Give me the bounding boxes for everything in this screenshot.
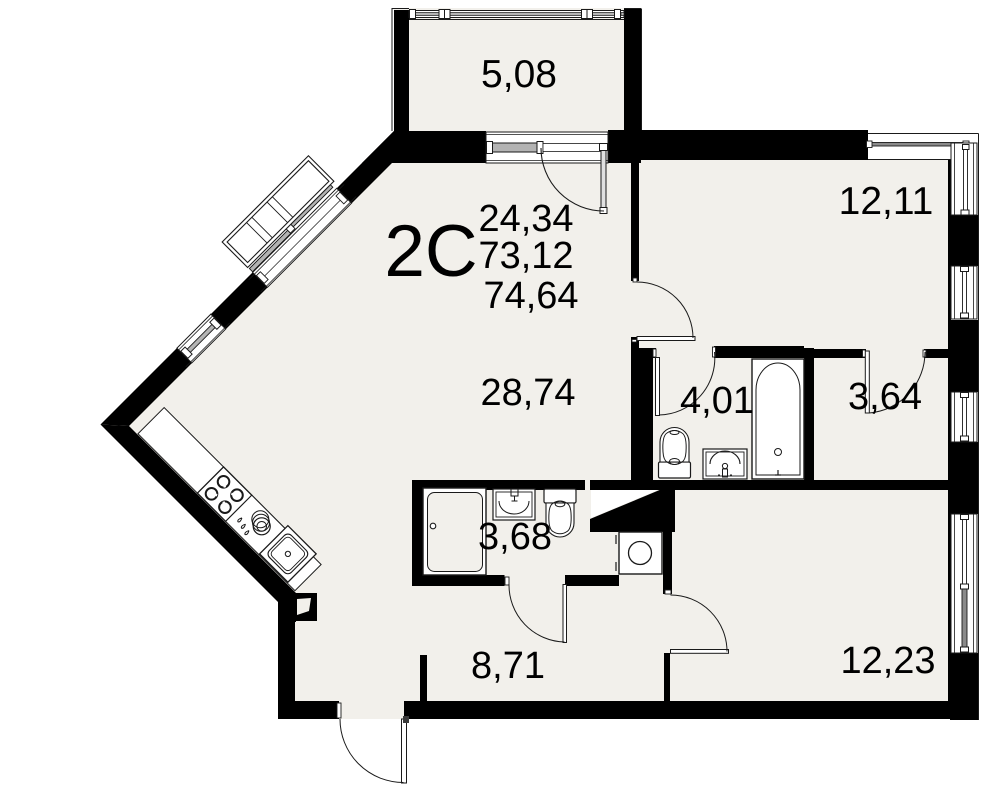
svg-text:3,64: 3,64 — [848, 376, 922, 418]
svg-text:4,01: 4,01 — [680, 380, 754, 422]
svg-text:2C: 2C — [384, 211, 477, 292]
svg-text:28,74: 28,74 — [480, 372, 575, 414]
svg-text:5,08: 5,08 — [481, 53, 557, 96]
svg-text:12,11: 12,11 — [839, 180, 934, 223]
svg-text:73,12: 73,12 — [478, 235, 573, 277]
svg-text:12,23: 12,23 — [840, 640, 935, 682]
svg-text:8,71: 8,71 — [471, 645, 545, 687]
svg-text:24,34: 24,34 — [478, 198, 573, 240]
svg-text:74,64: 74,64 — [483, 275, 578, 317]
svg-text:3,68: 3,68 — [478, 516, 552, 558]
